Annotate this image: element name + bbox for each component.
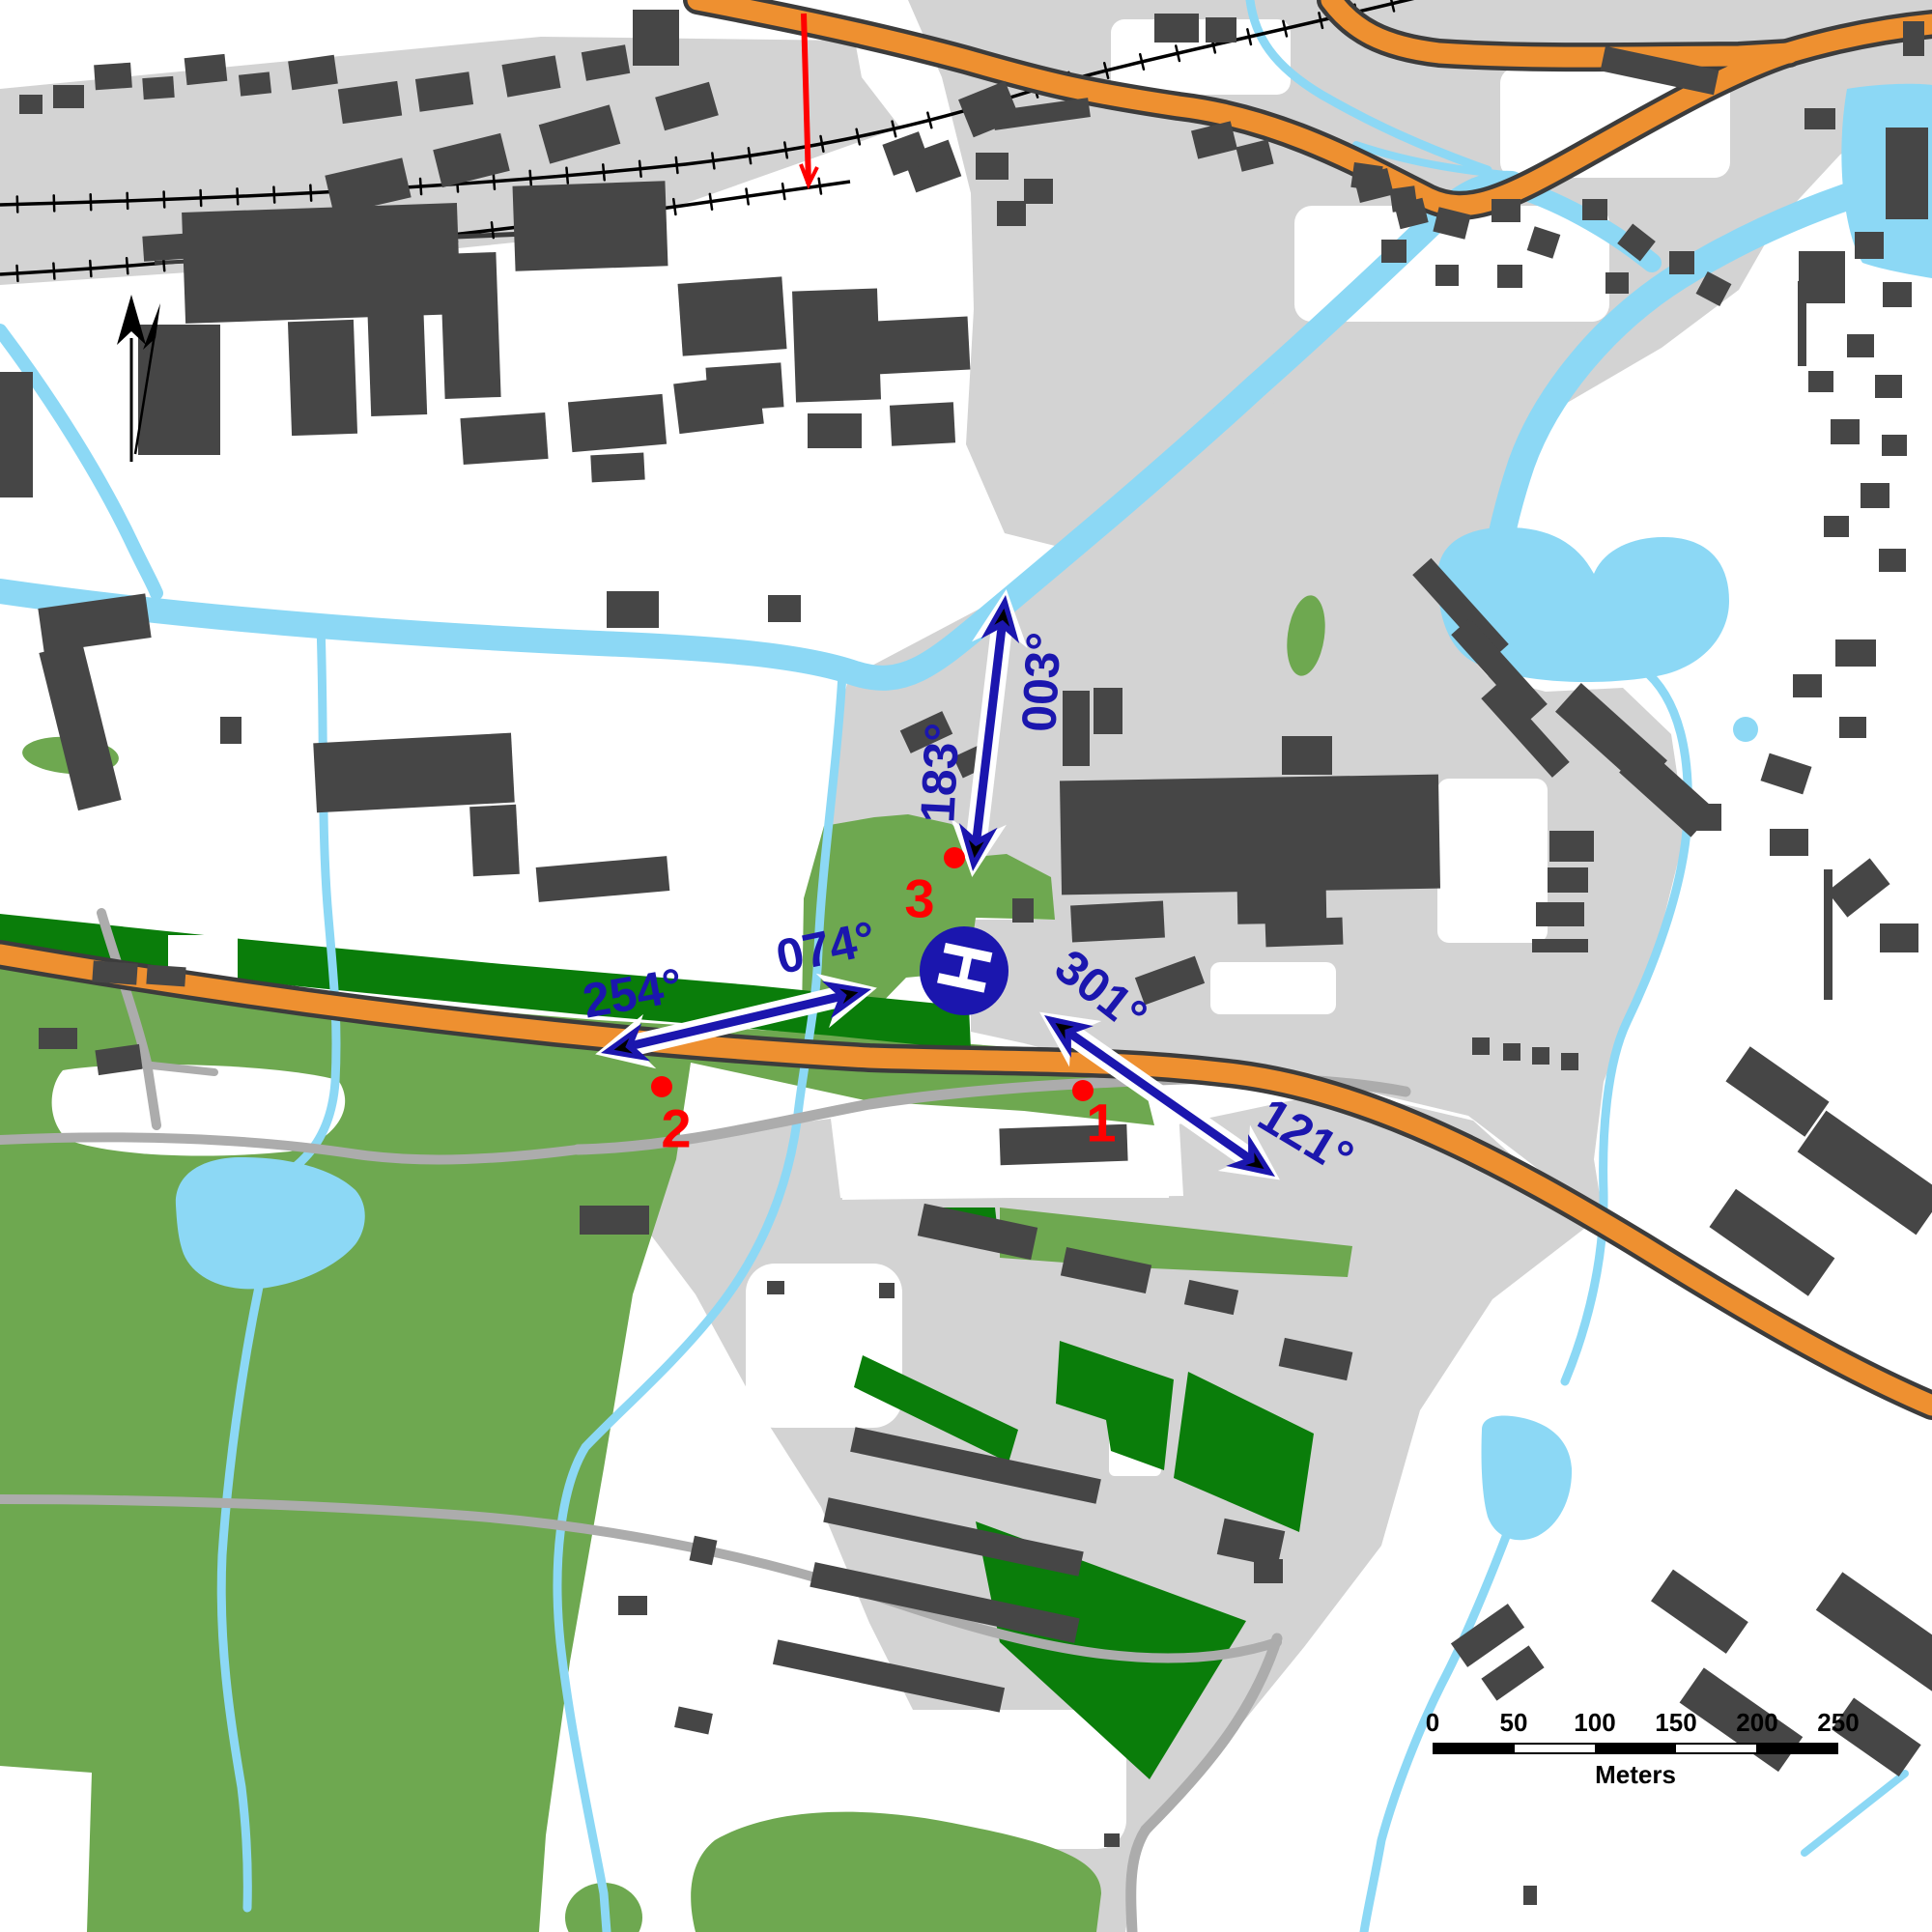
helipad-icon <box>920 926 1009 1015</box>
base-map <box>0 0 1932 1932</box>
map-canvas: 003° 183° 074° 254° 301° 121° 1 2 3 H 0 … <box>0 0 1932 1932</box>
